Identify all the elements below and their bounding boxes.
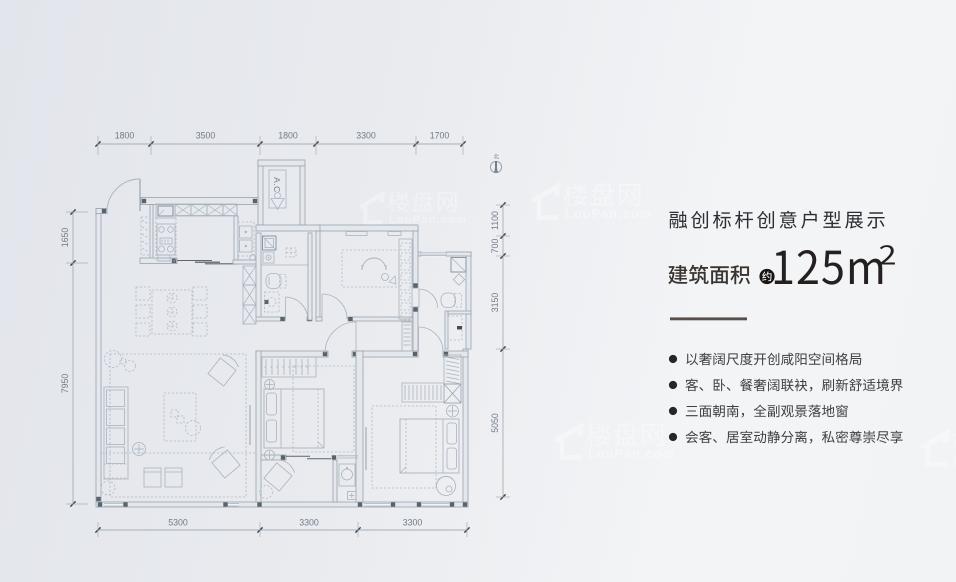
svg-text:1100: 1100: [490, 211, 500, 230]
svg-text:1650: 1650: [60, 228, 70, 248]
svg-text:7950: 7950: [60, 374, 70, 394]
svg-text:A.C: A.C: [272, 177, 282, 193]
svg-text:1800: 1800: [115, 131, 135, 141]
svg-text:3300: 3300: [403, 518, 423, 528]
svg-text:5300: 5300: [168, 518, 188, 528]
svg-text:3300: 3300: [356, 131, 376, 141]
svg-text:LouPan.com: LouPan.com: [389, 214, 467, 226]
svg-text:1800: 1800: [278, 131, 298, 141]
svg-text:700: 700: [490, 239, 500, 254]
svg-text:3300: 3300: [299, 518, 319, 528]
svg-text:LouPan.com: LouPan.com: [588, 447, 675, 461]
svg-text:3500: 3500: [196, 131, 216, 141]
svg-text:3150: 3150: [490, 293, 500, 313]
svg-text:1700: 1700: [430, 131, 450, 141]
svg-text:5050: 5050: [490, 413, 500, 433]
svg-text:LouPan.com: LouPan.com: [565, 207, 652, 221]
